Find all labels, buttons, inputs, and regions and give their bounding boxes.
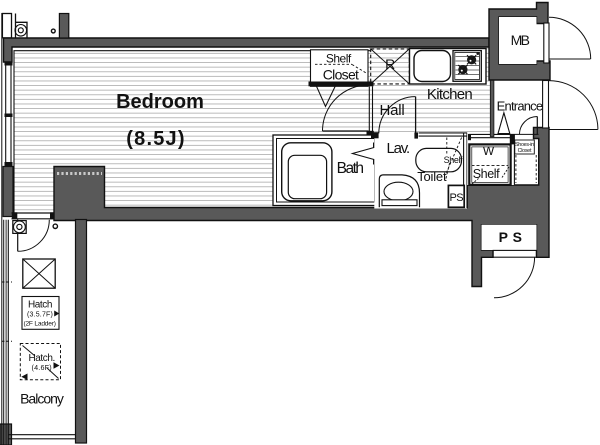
svg-text:Kitchen: Kitchen [427, 86, 472, 103]
svg-text:MB: MB [511, 32, 530, 48]
svg-text:Shelf: Shelf [473, 167, 500, 181]
svg-text:Bath: Bath [337, 160, 364, 177]
svg-text:Entrance: Entrance [497, 99, 543, 114]
svg-text:Shelf: Shelf [444, 155, 463, 165]
svg-text:Hatch: Hatch [28, 300, 52, 311]
svg-text:R: R [385, 56, 395, 72]
svg-text:P S: P S [499, 229, 523, 245]
svg-text:Shelf: Shelf [326, 52, 352, 66]
svg-text:Shoes-in: Shoes-in [515, 142, 534, 148]
svg-text:Closet: Closet [323, 66, 359, 82]
svg-text:W: W [483, 144, 495, 158]
svg-text:(8.5J): (8.5J) [126, 128, 185, 150]
svg-text:Bedroom: Bedroom [116, 91, 204, 113]
svg-text:Toilet: Toilet [417, 169, 447, 184]
svg-text:(4.6F): (4.6F) [32, 363, 52, 372]
svg-text:Closet: Closet [518, 148, 532, 154]
svg-text:Lav.: Lav. [386, 140, 408, 157]
svg-text:Balcony: Balcony [20, 391, 64, 407]
svg-text:(3.5.7F): (3.5.7F) [27, 311, 53, 318]
svg-text:(2F Ladder): (2F Ladder) [23, 321, 55, 328]
svg-text:PS: PS [449, 192, 463, 204]
